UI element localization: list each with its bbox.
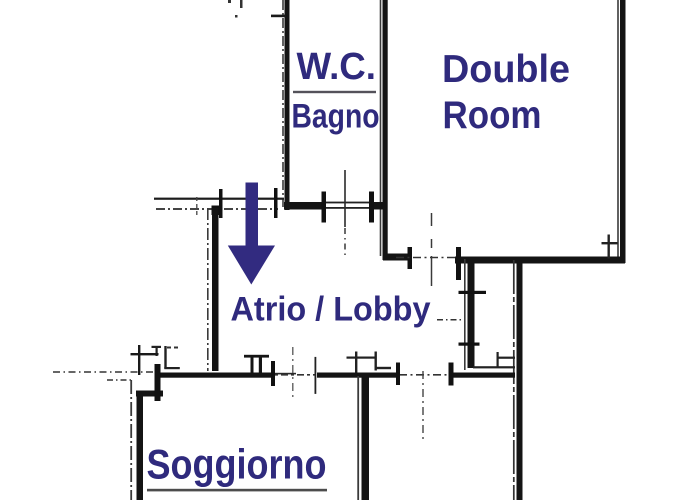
svg-text:W.C.: W.C. bbox=[297, 46, 377, 88]
svg-text:Bagno: Bagno bbox=[292, 97, 380, 135]
svg-text:Double: Double bbox=[442, 48, 570, 91]
svg-text:Atrio / Lobby: Atrio / Lobby bbox=[231, 290, 431, 328]
svg-text:Soggiorno: Soggiorno bbox=[147, 440, 327, 487]
svg-text:Room: Room bbox=[443, 94, 542, 137]
